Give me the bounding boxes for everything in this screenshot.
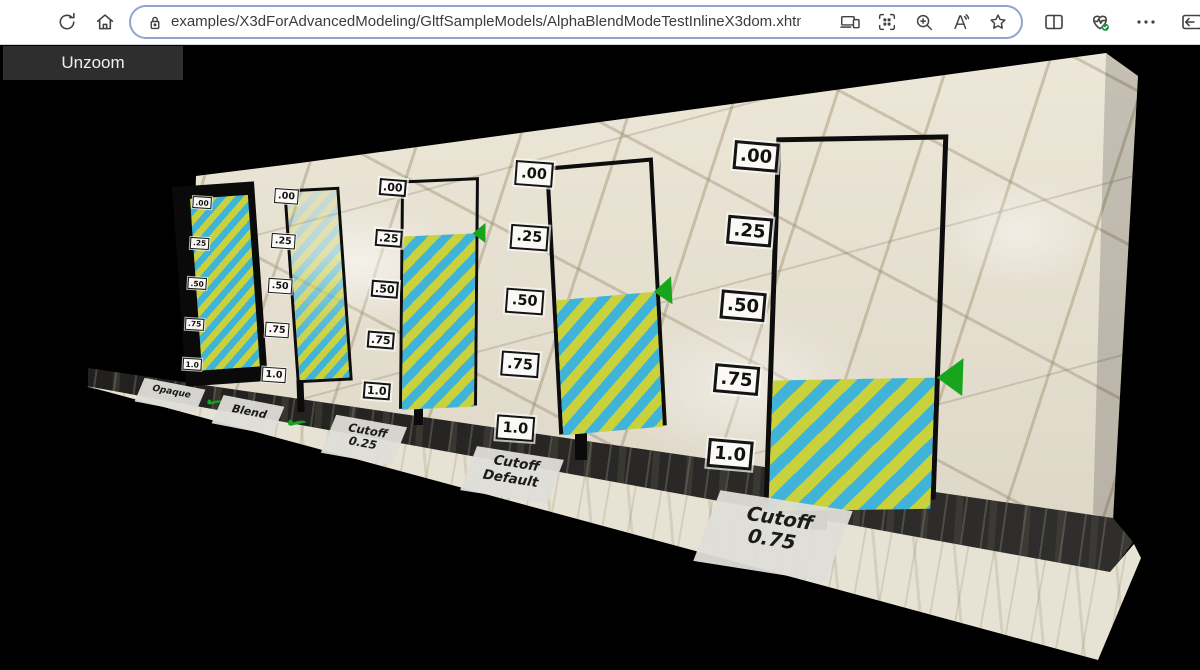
striped-quad-cutoff-075	[768, 377, 935, 511]
scale-tick: .00	[732, 140, 779, 173]
browser-toolbar: examples/X3dForAdvancedModeling/GltfSamp…	[0, 0, 1200, 45]
scale-tick: .50	[719, 289, 766, 322]
scale-tick: .75	[265, 322, 290, 339]
scale-tick: .00	[192, 196, 212, 209]
read-aloud-button[interactable]	[950, 11, 972, 33]
read-aloud-icon	[950, 11, 972, 33]
cutoff-arrow-icon	[472, 223, 485, 244]
scale-tick: .50	[268, 277, 293, 294]
scale-tick: .75	[185, 317, 205, 330]
striped-quad-cutoff-default	[556, 292, 663, 436]
scale-tick: .25	[510, 224, 550, 252]
refresh-icon	[56, 11, 78, 33]
send-to-devices-button[interactable]	[839, 11, 861, 33]
scale-tick: .25	[726, 214, 773, 247]
unzoom-button[interactable]: Unzoom	[3, 46, 183, 80]
zoom-in-button[interactable]	[913, 11, 935, 33]
browser-essentials-button[interactable]	[1088, 9, 1114, 35]
x3dom-canvas[interactable]: .00 .25 .50 .75 1.0 .00 .25 .50 .75 1.0 …	[0, 44, 1200, 670]
scale-tick: 1.0	[182, 358, 202, 371]
panel-cutoff-075	[764, 134, 949, 502]
browser-essentials-icon	[1088, 10, 1114, 34]
split-screen-button[interactable]	[1042, 9, 1068, 35]
scale-tick: 1.0	[706, 438, 753, 471]
favorite-star-icon	[987, 11, 1009, 33]
refresh-button[interactable]	[54, 9, 80, 35]
scale-tick: .75	[500, 351, 540, 379]
address-bar-actions	[839, 11, 1009, 33]
cutoff-arrow-icon	[936, 358, 963, 396]
toolbar-right-actions	[1042, 9, 1200, 35]
home-button[interactable]	[92, 9, 118, 35]
scale-tick: 1.0	[261, 367, 286, 384]
scale-tick: .25	[271, 233, 296, 250]
scale-tick: .00	[514, 160, 554, 188]
zoom-in-icon	[913, 11, 935, 33]
scale-tick: .50	[505, 287, 545, 315]
scale-tick: .50	[187, 277, 207, 290]
scale-tick: .75	[713, 363, 760, 396]
site-info-lock-icon[interactable]	[145, 13, 165, 33]
more-options-icon	[1134, 10, 1160, 34]
favorite-star-button[interactable]	[987, 11, 1009, 33]
scale-tick: 1.0	[363, 381, 391, 400]
scale-tick: .75	[367, 331, 395, 350]
browser-window: examples/X3dForAdvancedModeling/GltfSamp…	[0, 0, 1200, 670]
striped-quad-cutoff-025	[402, 234, 475, 411]
address-bar[interactable]: examples/X3dForAdvancedModeling/GltfSamp…	[129, 5, 1023, 39]
panel-cutoff-025	[399, 177, 479, 409]
url-text[interactable]: examples/X3dForAdvancedModeling/GltfSamp…	[171, 7, 801, 37]
cutoff-arrow-icon	[653, 276, 672, 306]
scale-tick: .25	[190, 236, 210, 249]
more-options-button[interactable]	[1134, 9, 1160, 35]
panel-cutoff-default	[545, 157, 667, 434]
scale-tick: .25	[375, 229, 403, 248]
scale-tick: .00	[379, 178, 407, 197]
apps-grid-button[interactable]	[876, 11, 898, 33]
scale-tick: .50	[371, 280, 399, 299]
sidebar-toggle-icon	[1180, 10, 1200, 34]
scale-tick: 1.0	[495, 414, 535, 442]
split-screen-icon	[1042, 10, 1068, 34]
panel-post	[296, 380, 304, 412]
home-icon	[94, 11, 116, 33]
sidebar-toggle-button[interactable]	[1180, 9, 1200, 35]
apps-grid-icon	[876, 11, 898, 33]
send-to-devices-icon	[839, 11, 861, 33]
scale-tick: .00	[274, 188, 299, 205]
